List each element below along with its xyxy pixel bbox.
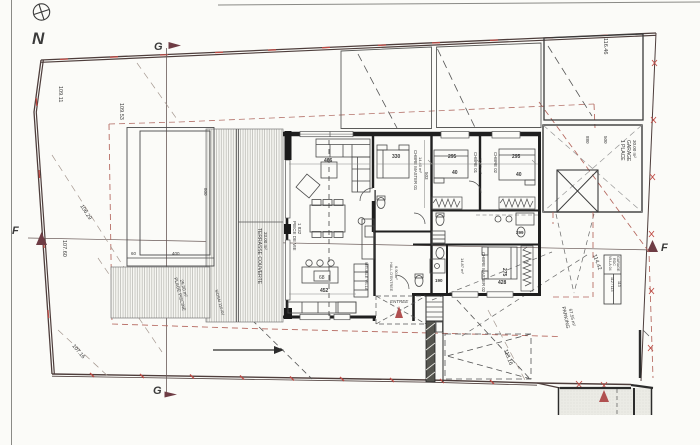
svg-text:295: 295 [512,154,521,160]
svg-text:400: 400 [172,251,180,256]
svg-text:109.53: 109.53 [118,103,124,120]
svg-text:500: 500 [603,136,608,144]
svg-text:880: 880 [585,136,590,144]
svg-text:107.60: 107.60 [61,240,67,257]
svg-text:PIECE DE VIE: PIECE DE VIE [292,221,297,251]
svg-text:CHBRE MASTER 02: CHBRE MASTER 02 [481,252,486,293]
svg-text:68: 68 [319,275,325,281]
svg-text:CHBRE 01: CHBRE 01 [473,152,478,174]
svg-text:112 / 113: 112 / 113 [610,277,614,291]
svg-text:330: 330 [392,154,401,160]
svg-text:ENTREE: ENTREE [390,299,409,304]
svg-text:G: G [153,385,162,397]
svg-text:F: F [12,225,19,237]
svg-text:CHBRE 02: CHBRE 02 [493,152,498,174]
svg-text:33.00 m²: 33.00 m² [263,232,268,250]
svg-text:14.87 m²: 14.87 m² [460,258,465,274]
svg-text:10.85 m²: 10.85 m² [478,158,483,174]
svg-text:428: 428 [498,280,507,286]
svg-text:40: 40 [516,172,522,178]
svg-text:40: 40 [452,170,458,176]
svg-text:CHBRE MASTER 01: CHBRE MASTER 01 [413,150,418,191]
svg-text:GARAGE: GARAGE [616,256,620,272]
svg-text:GARAGE: GARAGE [625,140,631,162]
svg-text:1 PLACE: 1 PLACE [619,140,625,161]
svg-text:F: F [661,242,668,254]
svg-text:800: 800 [203,188,208,196]
svg-text:275: 275 [501,268,507,277]
svg-text:109.11: 109.11 [57,86,63,102]
svg-text:6.90 m²: 6.90 m² [394,266,399,280]
svg-text:TERRASSE COUVERTE: TERRASSE COUVERTE [256,228,262,285]
svg-text:RDC: RDC [612,258,616,266]
svg-text:452: 452 [320,288,329,294]
svg-text:14.40 m²: 14.40 m² [418,157,423,173]
svg-text:190: 190 [435,278,443,283]
svg-text:30.00 m²: 30.00 m² [632,140,637,158]
svg-text:60: 60 [131,251,137,256]
svg-text:113: 113 [617,281,621,287]
svg-text:VILLA 04: VILLA 04 [608,256,612,271]
svg-text:G: G [154,41,163,53]
svg-text:HALL D'ENTREE: HALL D'ENTREE [389,262,393,292]
svg-text:MEUBLE VILLA: MEUBLE VILLA [364,262,369,291]
svg-text:299: 299 [516,230,524,235]
svg-text:295: 295 [448,154,457,160]
svg-text:1 832: 1 832 [297,223,302,235]
svg-text:466: 466 [324,158,333,164]
svg-text:N: N [32,29,45,48]
svg-text:116.46: 116.46 [602,38,608,54]
